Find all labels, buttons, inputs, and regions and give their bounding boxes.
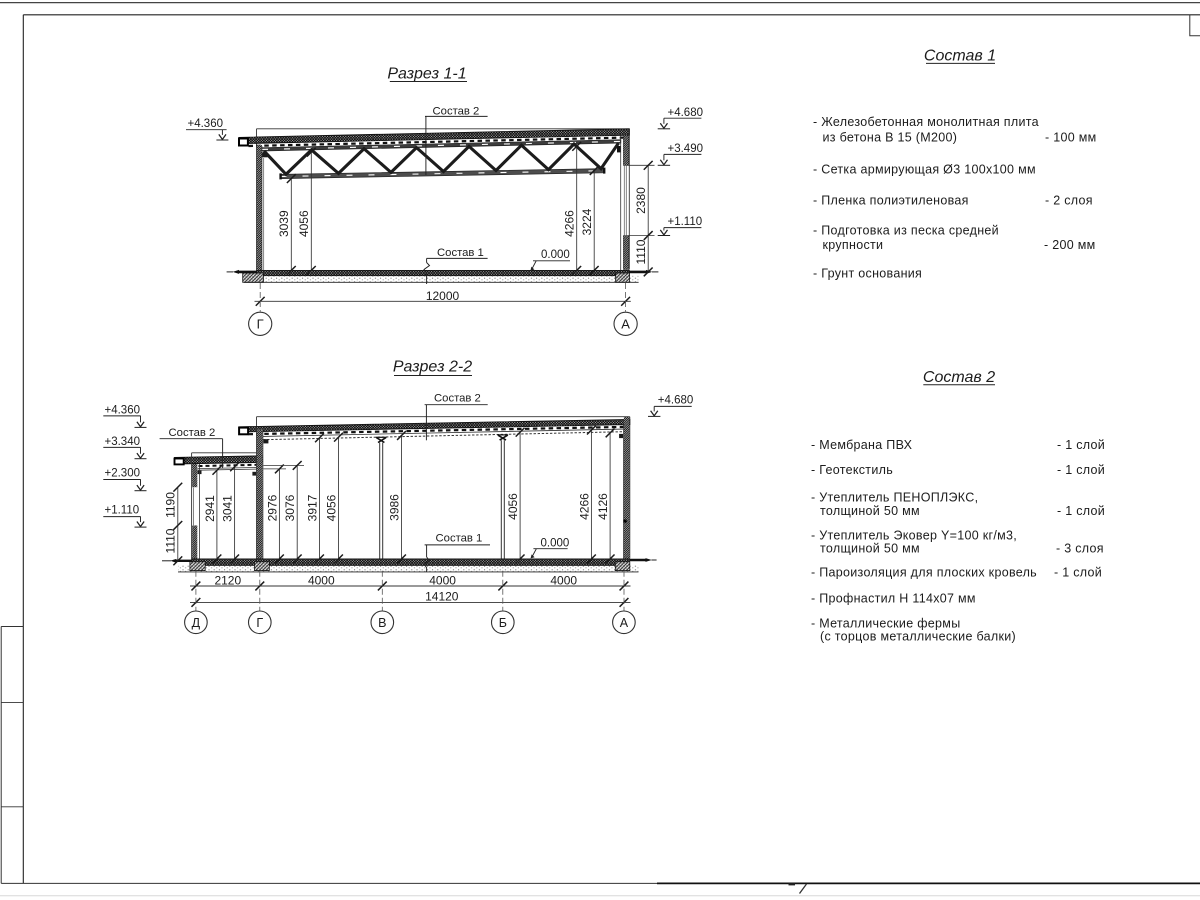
svg-text:4056: 4056 — [324, 494, 338, 521]
svg-text:Состав 1: Состав 1 — [924, 48, 996, 65]
svg-text:Состав 1: Состав 1 — [436, 533, 483, 545]
svg-text:+4.360: +4.360 — [188, 118, 224, 130]
svg-text:- Железобетонная монолитная п: - Железобетонная монолитная плита — [813, 115, 1039, 129]
svg-text:- Сетка армирующая Ø3 100х100: - Сетка армирующая Ø3 100х100 мм — [813, 162, 1036, 176]
svg-text:4000: 4000 — [550, 573, 577, 587]
svg-text:- Грунт основания: - Грунт основания — [813, 266, 922, 280]
svg-text:14120: 14120 — [425, 589, 459, 603]
svg-text:+4.680: +4.680 — [658, 395, 694, 407]
svg-text:3039: 3039 — [277, 210, 291, 237]
svg-text:- 200 мм: - 200 мм — [1044, 238, 1096, 252]
svg-text:- Утеплитель ПЕНОПЛЭКС,: - Утеплитель ПЕНОПЛЭКС, — [811, 490, 978, 504]
svg-text:- 1 слой: - 1 слой — [1057, 438, 1105, 452]
svg-text:- Утеплитель Эковер Y=100 кг/м: - Утеплитель Эковер Y=100 кг/м3, — [811, 528, 1017, 542]
svg-text:Состав 2: Состав 2 — [434, 393, 481, 405]
svg-text:- Металлические фермы: - Металлические фермы — [811, 616, 961, 630]
svg-text:2120: 2120 — [214, 573, 241, 587]
svg-text:1110: 1110 — [634, 239, 648, 264]
svg-text:+1.110: +1.110 — [668, 216, 703, 228]
svg-text:3224: 3224 — [580, 208, 594, 235]
svg-text:- 1 слой: - 1 слой — [1057, 504, 1105, 518]
svg-text:1110: 1110 — [164, 528, 178, 553]
svg-text:0.000: 0.000 — [541, 249, 570, 261]
svg-text:3917: 3917 — [305, 494, 319, 521]
svg-text:1190: 1190 — [164, 492, 178, 518]
svg-text:толщиной 50 мм: толщиной 50 мм — [820, 541, 920, 555]
svg-text:+4.360: +4.360 — [105, 404, 141, 416]
svg-text:+3.340: +3.340 — [105, 436, 141, 448]
svg-text:0.000: 0.000 — [541, 537, 570, 549]
svg-text:Разрез 2-2: Разрез 2-2 — [393, 359, 472, 376]
svg-text:2941: 2941 — [203, 495, 217, 522]
svg-text:- 1 слой: - 1 слой — [1057, 463, 1105, 477]
svg-text:12000: 12000 — [426, 289, 460, 303]
svg-text:+2.300: +2.300 — [105, 467, 141, 479]
svg-text:- Пленка полиэтиленовая: - Пленка полиэтиленовая — [813, 193, 969, 207]
svg-text:Состав 2: Состав 2 — [433, 105, 480, 117]
svg-text:4266: 4266 — [577, 493, 591, 520]
svg-text:А: А — [621, 316, 630, 331]
svg-text:+1.110: +1.110 — [105, 504, 140, 516]
svg-text:- 3 слоя: - 3 слоя — [1056, 541, 1104, 555]
svg-text:Д: Д — [192, 616, 201, 630]
svg-text:4266: 4266 — [563, 210, 577, 237]
svg-text:- Профнастил Н 114х07 мм: - Профнастил Н 114х07 мм — [811, 591, 976, 605]
svg-text:- Мембрана ПВХ: - Мембрана ПВХ — [811, 438, 913, 452]
svg-text:2976: 2976 — [265, 494, 279, 521]
svg-text:Г: Г — [257, 316, 264, 331]
svg-text:Состав 2: Состав 2 — [169, 427, 216, 439]
svg-text:- 100 мм: - 100 мм — [1045, 130, 1097, 144]
svg-text:Состав 2: Состав 2 — [923, 369, 995, 386]
svg-text:крупности: крупности — [823, 238, 884, 252]
svg-text:А: А — [620, 616, 629, 630]
svg-text:(с торцов металлические балки): (с торцов металлические балки) — [820, 629, 1016, 643]
svg-text:4056: 4056 — [506, 493, 520, 520]
svg-text:3986: 3986 — [387, 494, 401, 521]
svg-text:толщиной 50 мм: толщиной 50 мм — [820, 504, 920, 518]
svg-text:3076: 3076 — [283, 494, 297, 521]
svg-text:4000: 4000 — [308, 573, 335, 587]
svg-text:4126: 4126 — [596, 493, 610, 520]
svg-text:- 2 слоя: - 2 слоя — [1045, 193, 1093, 207]
svg-text:- Пароизоляция для плоских кро: - Пароизоляция для плоских кровель — [811, 565, 1037, 579]
svg-text:+3.490: +3.490 — [668, 143, 704, 155]
svg-text:из бетона В 15 (М200): из бетона В 15 (М200) — [823, 130, 958, 144]
svg-text:- 1 слой: - 1 слой — [1054, 565, 1102, 579]
svg-text:3041: 3041 — [221, 495, 235, 522]
svg-text:Разрез 1-1: Разрез 1-1 — [387, 66, 466, 83]
svg-text:- Геотекстиль: - Геотекстиль — [811, 463, 893, 477]
svg-text:+4.680: +4.680 — [668, 107, 704, 119]
svg-text:Состав 1: Состав 1 — [437, 247, 484, 259]
svg-text:В: В — [378, 616, 386, 630]
svg-text:4056: 4056 — [297, 210, 311, 237]
svg-text:4000: 4000 — [429, 573, 456, 587]
svg-text:Г: Г — [256, 616, 263, 630]
svg-text:- Подготовка из песка средней: - Подготовка из песка средней — [813, 223, 999, 237]
svg-text:Б: Б — [499, 616, 507, 630]
svg-text:2380: 2380 — [634, 187, 648, 214]
